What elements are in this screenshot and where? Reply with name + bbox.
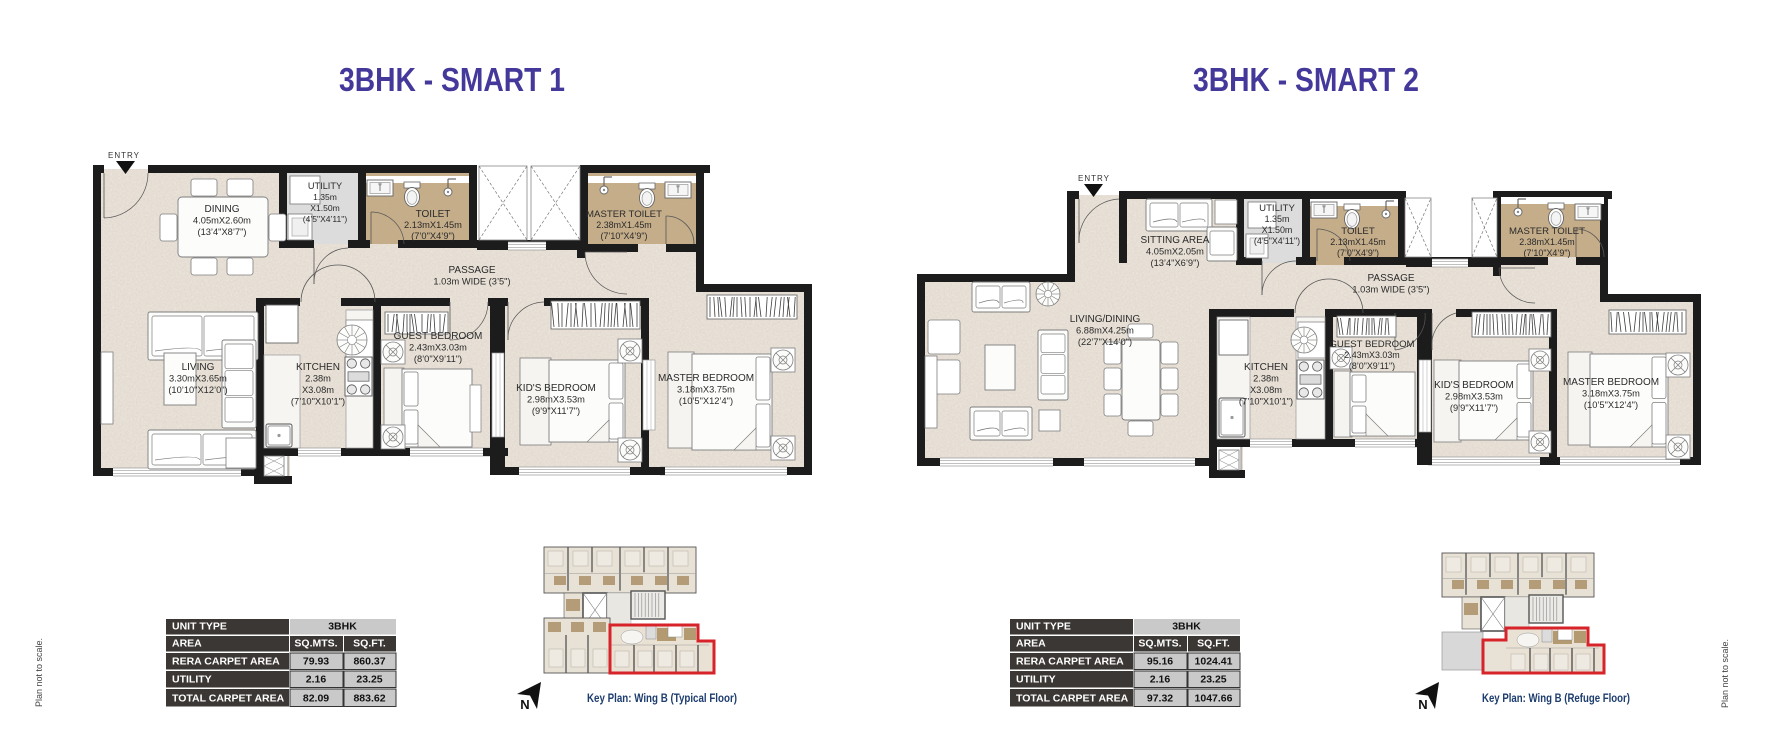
svg-text:79.93: 79.93: [303, 656, 329, 668]
svg-text:23.25: 23.25: [356, 674, 382, 686]
svg-text:UTILITY: UTILITY: [308, 181, 342, 191]
svg-text:3BHK: 3BHK: [328, 621, 357, 633]
svg-text:ENTRY: ENTRY: [108, 151, 140, 160]
svg-text:N: N: [1418, 697, 1427, 712]
svg-text:(13’4"X8’7"): (13’4"X8’7"): [198, 227, 247, 237]
svg-text:2.38mX1.45m: 2.38mX1.45m: [596, 220, 651, 230]
svg-text:UTILITY: UTILITY: [172, 674, 212, 686]
svg-text:2.38mX1.45m: 2.38mX1.45m: [1519, 237, 1574, 247]
svg-text:3BHK - SMART 1: 3BHK - SMART 1: [339, 61, 565, 98]
svg-text:97.32: 97.32: [1147, 693, 1173, 705]
svg-text:1.35m: 1.35m: [1265, 214, 1290, 224]
svg-text:(9’9"X11’7"): (9’9"X11’7"): [1450, 403, 1498, 413]
svg-text:UNIT TYPE: UNIT TYPE: [172, 621, 227, 633]
svg-text:SITTING AREA: SITTING AREA: [1141, 235, 1210, 246]
svg-text:SQ.MTS.: SQ.MTS.: [1138, 638, 1181, 650]
svg-text:2.98mX3.53m: 2.98mX3.53m: [527, 395, 585, 405]
svg-text:X1.50m: X1.50m: [310, 203, 339, 213]
svg-text:23.25: 23.25: [1200, 674, 1226, 686]
svg-text:2.13mX1.45m: 2.13mX1.45m: [404, 220, 462, 230]
svg-text:(9’9"X11’7"): (9’9"X11’7"): [532, 406, 580, 416]
svg-text:X3.08m: X3.08m: [302, 385, 334, 395]
svg-text:4.05mX2.05m: 4.05mX2.05m: [1146, 247, 1204, 257]
svg-text:MASTER TOILET: MASTER TOILET: [1509, 226, 1585, 237]
svg-text:(13’4"X6’9"): (13’4"X6’9"): [1151, 258, 1200, 268]
svg-text:4.05mX2.60m: 4.05mX2.60m: [193, 216, 251, 226]
svg-text:1047.66: 1047.66: [1195, 693, 1233, 705]
svg-text:SQ.FT.: SQ.FT.: [353, 638, 386, 650]
svg-text:1.03m WIDE (3’5"): 1.03m WIDE (3’5"): [1352, 285, 1429, 295]
svg-text:(10’5"X12’4"): (10’5"X12’4"): [1584, 400, 1638, 410]
svg-text:2.98mX3.53m: 2.98mX3.53m: [1445, 392, 1503, 402]
svg-text:ENTRY: ENTRY: [1078, 174, 1110, 183]
svg-text:TOTAL CARPET AREA: TOTAL CARPET AREA: [172, 693, 285, 705]
svg-text:(4’5"X4’11"): (4’5"X4’11"): [303, 214, 348, 224]
svg-text:(22’7"X14’0"): (22’7"X14’0"): [1078, 337, 1132, 347]
svg-text:N: N: [520, 697, 529, 712]
svg-text:2.43mX3.03m: 2.43mX3.03m: [1344, 350, 1399, 360]
svg-text:TOILET: TOILET: [1341, 226, 1375, 237]
svg-text:2.38m: 2.38m: [1253, 374, 1279, 384]
svg-text:Key Plan: Wing B (Typical Floo: Key Plan: Wing B (Typical Floor): [587, 691, 737, 705]
svg-text:3BHK - SMART 2: 3BHK - SMART 2: [1193, 61, 1419, 98]
svg-text:KITCHEN: KITCHEN: [1244, 362, 1288, 373]
svg-text:AREA: AREA: [1016, 638, 1046, 650]
svg-text:KID'S BEDROOM: KID'S BEDROOM: [1434, 380, 1514, 391]
svg-text:AREA: AREA: [172, 638, 202, 650]
svg-text:(7’0"X4’9"): (7’0"X4’9"): [411, 231, 455, 241]
svg-text:MASTER BEDROOM: MASTER BEDROOM: [1563, 377, 1659, 388]
svg-text:1.03m WIDE (3’5"): 1.03m WIDE (3’5"): [433, 277, 510, 287]
svg-text:SQ.MTS.: SQ.MTS.: [294, 638, 337, 650]
svg-text:SQ.FT.: SQ.FT.: [1197, 638, 1230, 650]
svg-text:RERA CARPET AREA: RERA CARPET AREA: [172, 656, 280, 668]
svg-text:(10’10"X12’0"): (10’10"X12’0"): [168, 385, 227, 395]
svg-text:3BHK: 3BHK: [1172, 621, 1201, 633]
svg-text:X3.08m: X3.08m: [1250, 385, 1282, 395]
svg-text:KITCHEN: KITCHEN: [296, 362, 340, 373]
svg-text:GUEST BEDROOM: GUEST BEDROOM: [394, 331, 483, 342]
svg-text:UNIT TYPE: UNIT TYPE: [1016, 621, 1071, 633]
svg-text:2.16: 2.16: [1150, 674, 1171, 686]
svg-text:LIVING: LIVING: [182, 362, 215, 373]
svg-text:6.88mX4.25m: 6.88mX4.25m: [1076, 326, 1134, 336]
svg-text:Plan not to scale.: Plan not to scale.: [1720, 639, 1730, 708]
svg-text:(7’10"X10’1"): (7’10"X10’1"): [291, 397, 345, 407]
svg-text:(7’10"X4’9"): (7’10"X4’9"): [1524, 248, 1571, 258]
svg-text:(8’0"X9’11"): (8’0"X9’11"): [414, 354, 462, 364]
svg-text:MASTER BEDROOM: MASTER BEDROOM: [658, 373, 754, 384]
svg-text:2.38m: 2.38m: [305, 374, 331, 384]
svg-text:PASSAGE: PASSAGE: [1367, 273, 1414, 284]
svg-text:95.16: 95.16: [1147, 656, 1173, 668]
svg-text:UTILITY: UTILITY: [1016, 674, 1056, 686]
svg-text:1.35m: 1.35m: [313, 192, 337, 202]
svg-text:PASSAGE: PASSAGE: [448, 265, 495, 276]
svg-text:UTILITY: UTILITY: [1259, 203, 1295, 214]
svg-text:(4’5"X4’11"): (4’5"X4’11"): [1254, 236, 1300, 246]
svg-text:TOILET: TOILET: [416, 209, 451, 220]
svg-text:2.13mX1.45m: 2.13mX1.45m: [1330, 237, 1385, 247]
svg-text:MASTER TOILET: MASTER TOILET: [586, 209, 662, 220]
svg-text:RERA CARPET AREA: RERA CARPET AREA: [1016, 656, 1124, 668]
svg-text:860.37: 860.37: [353, 656, 385, 668]
svg-text:TOTAL CARPET AREA: TOTAL CARPET AREA: [1016, 693, 1129, 705]
svg-text:X1.50m: X1.50m: [1262, 225, 1293, 235]
svg-text:Key Plan: Wing B (Refuge Floor: Key Plan: Wing B (Refuge Floor): [1482, 691, 1630, 705]
svg-text:Plan not to scale.: Plan not to scale.: [34, 638, 44, 707]
svg-text:KID'S BEDROOM: KID'S BEDROOM: [516, 383, 596, 394]
svg-text:3.18mX3.75m: 3.18mX3.75m: [1582, 389, 1640, 399]
svg-text:3.18mX3.75m: 3.18mX3.75m: [677, 385, 735, 395]
svg-text:2.16: 2.16: [306, 674, 327, 686]
svg-text:(10’5"X12’4"): (10’5"X12’4"): [679, 396, 733, 406]
svg-text:GUEST BEDROOM: GUEST BEDROOM: [1329, 339, 1414, 350]
svg-text:(8’0"X9’11"): (8’0"X9’11"): [1349, 361, 1395, 371]
svg-text:1024.41: 1024.41: [1195, 656, 1233, 668]
svg-text:82.09: 82.09: [303, 693, 329, 705]
svg-text:(7’0"X4’9"): (7’0"X4’9"): [1337, 248, 1379, 258]
svg-text:883.62: 883.62: [353, 693, 385, 705]
svg-text:3.30mX3.65m: 3.30mX3.65m: [169, 374, 227, 384]
svg-text:LIVING/DINING: LIVING/DINING: [1070, 314, 1141, 325]
svg-text:(7’10"X10’1"): (7’10"X10’1"): [1239, 397, 1293, 407]
svg-text:(7’10"X4’9"): (7’10"X4’9"): [601, 231, 648, 241]
svg-text:DINING: DINING: [205, 204, 240, 215]
svg-text:2.43mX3.03m: 2.43mX3.03m: [409, 343, 467, 353]
